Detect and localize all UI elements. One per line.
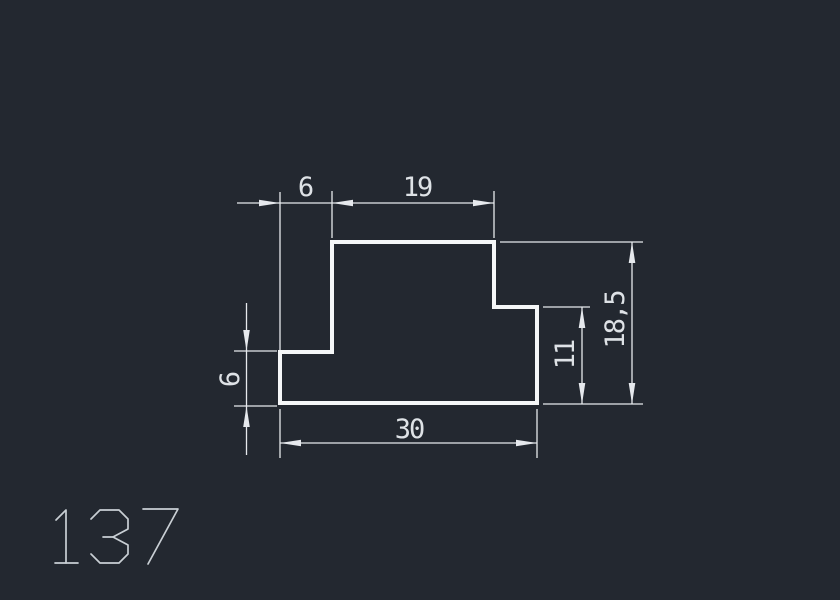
profile-outline: [280, 242, 537, 403]
dim-total-height: 18,5: [500, 242, 643, 404]
cad-viewport: 6 19 30 6: [0, 0, 840, 600]
part-number-stroke: [91, 510, 128, 537]
dim-left-step: 6: [215, 303, 277, 455]
dim-right-step: 11: [543, 307, 590, 404]
arrowhead: [473, 200, 494, 207]
arrowhead: [629, 242, 636, 263]
arrowhead: [629, 383, 636, 404]
part-number: [55, 509, 178, 564]
arrowhead: [243, 330, 250, 351]
dimension-annotations: 6 19 30 6: [215, 172, 643, 458]
dim-label-top-width: 19: [403, 172, 432, 203]
arrowhead: [579, 383, 586, 404]
arrowhead: [516, 440, 537, 447]
arrowhead: [332, 200, 353, 207]
arrowhead: [280, 440, 301, 447]
dim-top-offset: 6: [237, 172, 494, 350]
part-number-stroke: [143, 509, 178, 564]
dim-label-bottom-width: 30: [395, 414, 424, 445]
arrowhead: [579, 307, 586, 328]
dim-bottom-width: 30: [280, 409, 537, 458]
cad-canvas: 6 19 30 6: [0, 0, 840, 600]
dim-label-top-offset: 6: [298, 172, 313, 203]
arrowhead: [259, 200, 280, 207]
arrowhead: [243, 406, 250, 427]
part-number-stroke: [91, 537, 128, 563]
dim-label-total-height: 18,5: [600, 291, 631, 349]
part-number-stroke: [56, 510, 66, 563]
dim-top-width: 19: [403, 172, 494, 238]
dim-label-left-step: 6: [215, 372, 246, 387]
dim-label-right-step: 11: [550, 340, 581, 369]
